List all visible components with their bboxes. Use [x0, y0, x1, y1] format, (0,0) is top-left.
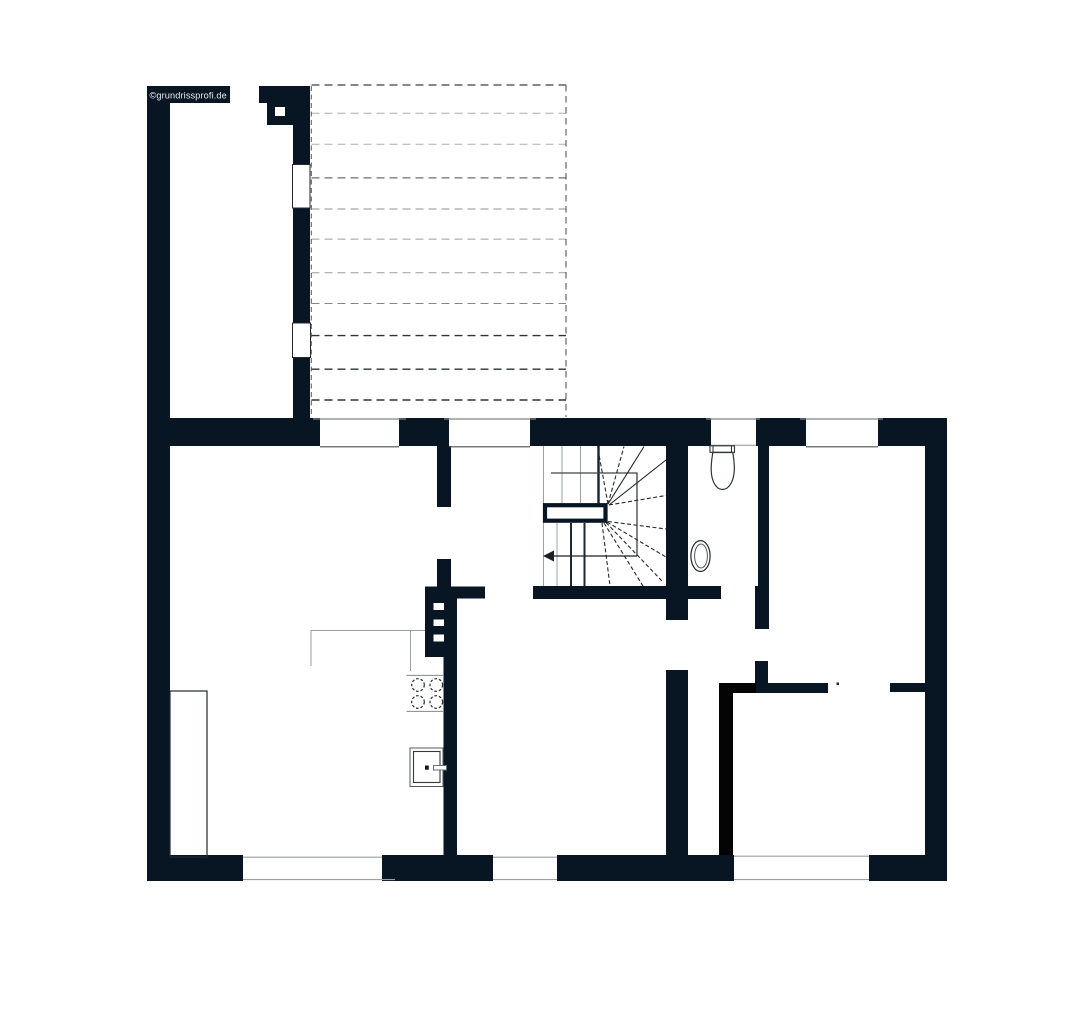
svg-text:©grundrissprofi.de: ©grundrissprofi.de [150, 91, 227, 101]
